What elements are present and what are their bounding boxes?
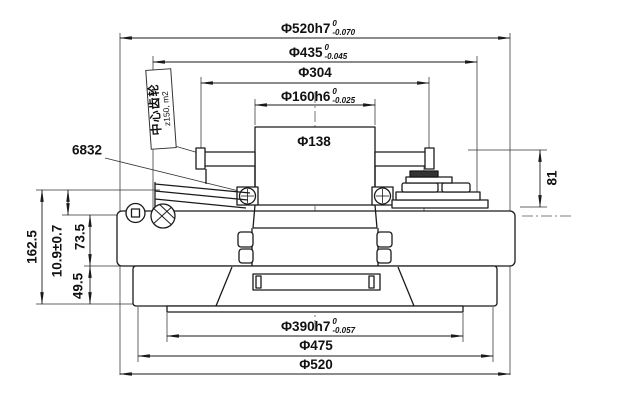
- label-bearing-6832: 6832: [72, 143, 102, 157]
- cam-follower-stud: [132, 209, 140, 217]
- slide-bolt-right: [369, 276, 374, 288]
- gear-rim-right: [425, 148, 434, 169]
- gear-rim-left: [196, 148, 205, 169]
- base-spigot-phi390: [167, 306, 463, 312]
- dim-phi138: Φ138: [297, 135, 331, 149]
- dim-73-5: 73.5: [73, 224, 87, 250]
- center-gear-flange-left: [202, 152, 255, 166]
- clamp-pad-left: [402, 183, 438, 192]
- dim-phi520h7: Φ520h7 0-0.070: [281, 20, 355, 37]
- dim-10-9: 10.9±0.7: [50, 225, 64, 277]
- dim-81: 81: [545, 170, 559, 185]
- dim-phi475: Φ475: [299, 339, 333, 353]
- inner-slide: [253, 274, 380, 290]
- clamp-top-plate: [406, 177, 452, 183]
- hub-lug-right-upper: [377, 232, 392, 247]
- clamp-pad-right: [442, 183, 470, 192]
- engineering-drawing-canvas: Φ520h7 0-0.070 Φ435 0-0.045 Φ304 Φ160h6 …: [0, 0, 619, 407]
- tolerance-phi435: 0-0.045: [324, 44, 347, 61]
- dim-162-5: 162.5: [25, 230, 39, 264]
- center-gear-callout: 中心齿轮 z150, m2: [145, 68, 177, 150]
- dim-phi390h7: Φ390h7 0-0.057: [281, 318, 355, 335]
- clamp-block: [410, 171, 438, 177]
- dim-phi160h6: Φ160h6 0-0.025: [281, 88, 355, 105]
- hub-lug-right-lower: [377, 249, 391, 263]
- clamp-base-flange: [392, 200, 488, 208]
- dim-phi304: Φ304: [298, 66, 332, 80]
- clamp-step-plate: [396, 192, 480, 200]
- upper-housing: [117, 211, 515, 266]
- dim-49-5: 49.5: [71, 273, 85, 299]
- center-gear-flange-right: [375, 152, 428, 166]
- dim-phi520: Φ520: [299, 358, 333, 372]
- hub-lug-left-upper: [238, 232, 253, 247]
- hub-lug-left-lower: [239, 249, 253, 263]
- tolerance-phi390h7: 0-0.057: [332, 318, 355, 335]
- tolerance-phi160h6: 0-0.025: [332, 88, 355, 105]
- tolerance-phi520h7: 0-0.070: [332, 20, 355, 37]
- slide-bolt-left: [256, 276, 261, 288]
- center-gear-callout-text: 中心齿轮 z150, m2: [146, 69, 175, 148]
- dim-phi435: Φ435 0-0.045: [289, 44, 347, 61]
